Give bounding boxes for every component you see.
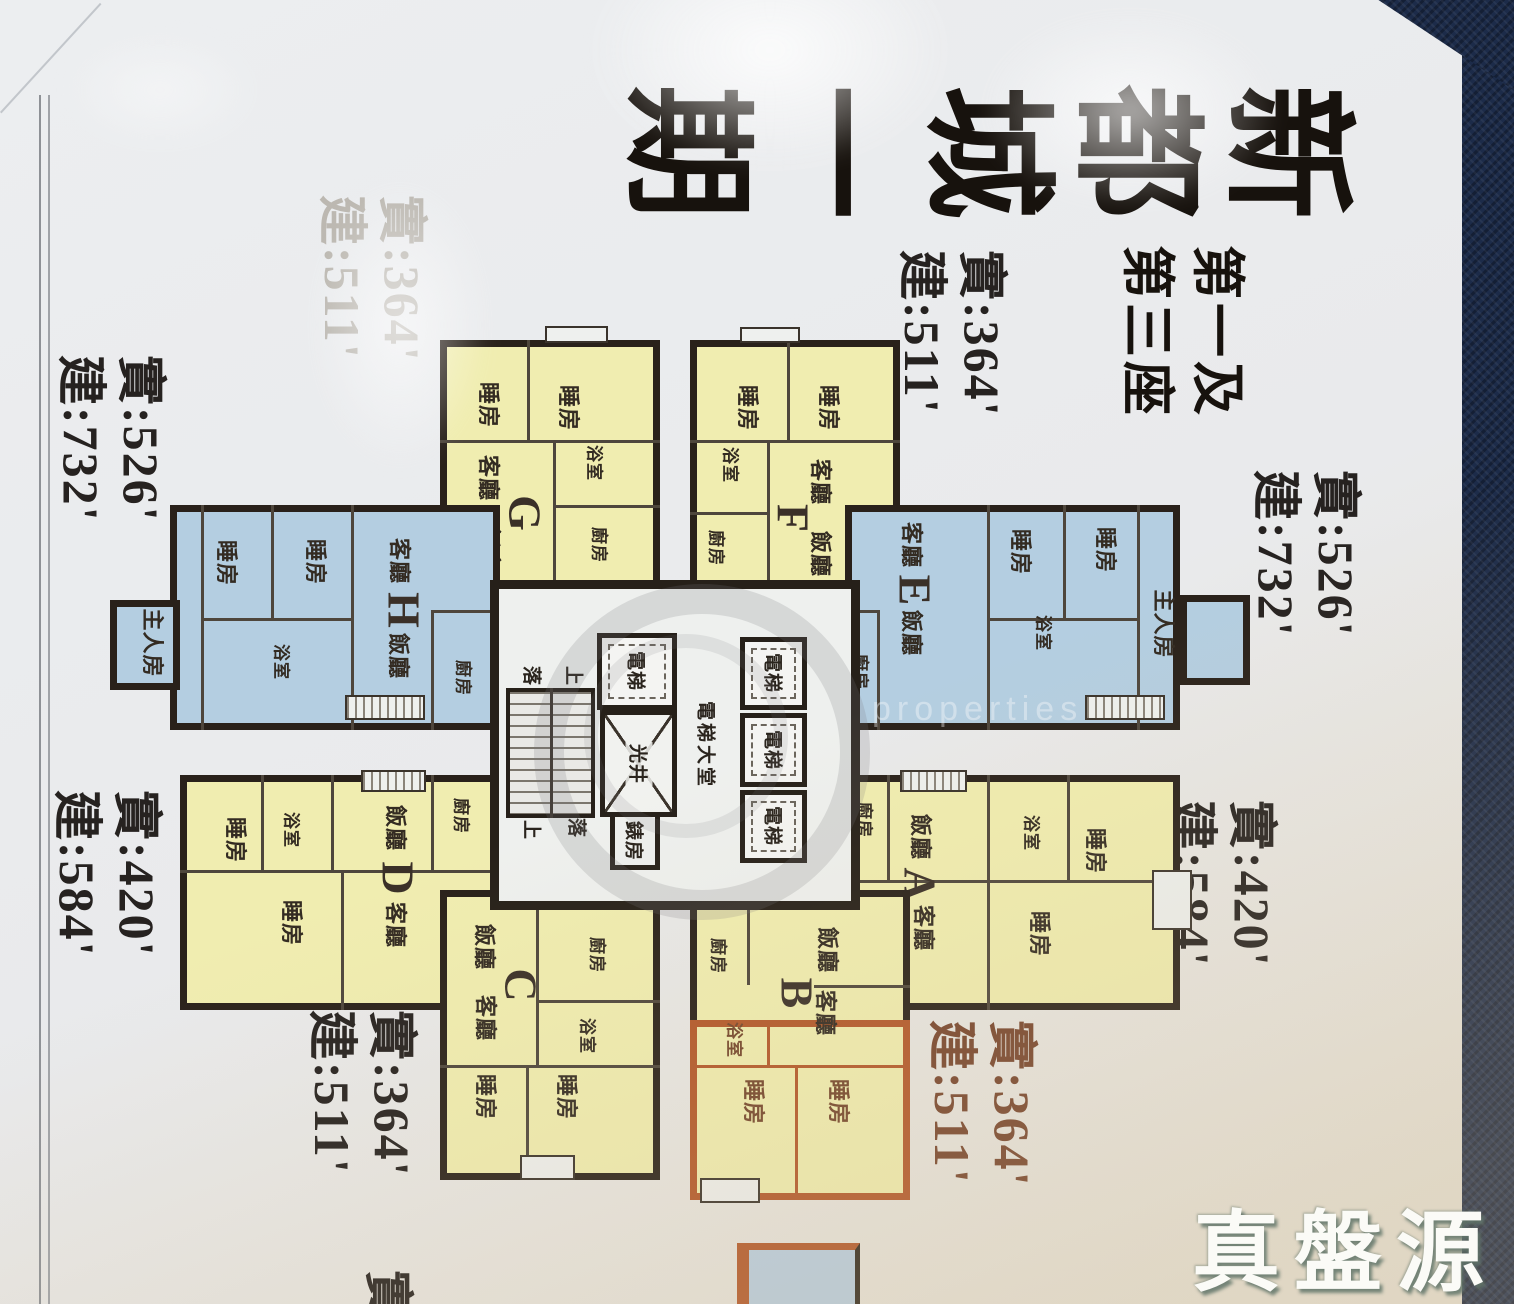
wall-segment: [440, 1065, 660, 1068]
room-label-bath: 浴室: [281, 812, 306, 848]
window-stub: [545, 326, 608, 343]
glare-highlight: [310, 180, 490, 470]
area-net: 實:364': [362, 1010, 422, 1178]
area-label-unit-f: 實:364' 建:511': [892, 250, 1012, 418]
room-label-bedroom: 睡房: [739, 1079, 771, 1125]
room-label-living: 客廳: [474, 455, 506, 501]
area-net: 實:526': [1306, 470, 1366, 638]
wall-segment: [767, 1020, 770, 1065]
room-label-dining: 飯廳: [470, 924, 502, 970]
area-gross: 建:584': [47, 790, 107, 958]
room-label-bedroom: 睡房: [552, 1074, 584, 1120]
wall-segment: [987, 775, 990, 1010]
room-label-bedroom: 睡房: [221, 817, 253, 863]
page-edge-line: [39, 95, 41, 1304]
area-net: 實:364': [952, 250, 1012, 418]
unit-letter-g: G: [499, 495, 552, 531]
room-label-bedroom: 睡房: [1091, 527, 1123, 573]
unit-letter-f: F: [767, 504, 820, 532]
room-label-bedroom: 睡房: [1025, 911, 1057, 957]
wall-segment: [690, 1065, 910, 1068]
stair-down-label: 落: [520, 666, 547, 686]
wall-segment: [431, 775, 434, 870]
room-label-bath: 浴室: [1033, 615, 1058, 651]
room-label-dining: 飯廳: [897, 610, 929, 656]
room-label-bath: 浴室: [584, 445, 609, 481]
wall-segment: [331, 775, 334, 870]
room-label-dining: 飯廳: [813, 927, 845, 973]
area-gross: 建:511': [922, 1020, 982, 1188]
window-stub: [700, 1178, 760, 1203]
area-label-unit-d: 實:420' 建:584': [47, 790, 167, 958]
room-label-bedroom: 睡房: [824, 1079, 856, 1125]
area-label-unit-h: 實:526' 建:732': [51, 355, 171, 523]
unit-letter-e: E: [889, 575, 942, 606]
area-gross: 建:511': [302, 1010, 362, 1178]
room-label-bedroom: 睡房: [212, 540, 244, 586]
room-label-dining: 飯廳: [384, 633, 416, 679]
room-label-bedroom: 睡房: [1006, 529, 1038, 575]
room-label-master-bedroom: 主人房: [1149, 589, 1181, 658]
room-label-living: 客廳: [897, 522, 929, 568]
room-label-bath: 浴室: [577, 1018, 602, 1054]
area-net: 實:364': [982, 1020, 1042, 1188]
window-stub: [740, 327, 800, 343]
unit-letter-h: H: [378, 592, 431, 628]
unit-e-master-wing: [1180, 595, 1250, 685]
room-label-dining: 飯廳: [806, 531, 838, 577]
wall-segment: [204, 618, 354, 621]
wall-segment: [887, 775, 890, 880]
listing-brand-watermark: 真盤源: [1192, 1182, 1498, 1304]
area-gross: 建:511': [892, 250, 952, 418]
area-net: 實:420': [1222, 800, 1282, 968]
balcony-hatched: [361, 770, 426, 792]
wall-segment: [814, 985, 910, 988]
subtitle-blocks-line2: 第三座: [1113, 245, 1192, 419]
room-label-kitchen: 廚房: [708, 938, 733, 974]
unit-letter-c: C: [495, 968, 548, 1001]
room-label-living: 客廳: [385, 538, 417, 584]
room-label-living: 客廳: [471, 995, 503, 1041]
wall-segment: [341, 870, 344, 1010]
wall-segment: [990, 618, 1140, 621]
agency-watermark-text: properties: [872, 690, 1083, 729]
area-label-unit-c: 實:364' 建:511': [302, 1010, 422, 1178]
room-label-bath: 浴室: [1021, 815, 1046, 851]
stair-up-label: 上: [520, 820, 547, 840]
wall-segment: [431, 610, 434, 730]
room-label-kitchen: 廚房: [451, 798, 476, 834]
room-label-bedroom: 睡房: [471, 1074, 503, 1120]
room-label-bedroom: 睡房: [554, 385, 586, 431]
unit-letter-d: D: [372, 861, 425, 894]
unit-letter-b: B: [771, 978, 824, 1009]
area-gross: 建:732': [51, 355, 111, 523]
wall-segment: [201, 505, 204, 730]
wall-segment: [539, 1000, 660, 1003]
wall-segment: [527, 340, 530, 440]
wall-segment: [261, 775, 264, 870]
wall-segment: [787, 340, 790, 440]
room-label-kitchen: 廚房: [587, 937, 612, 973]
window-stub: [520, 1155, 575, 1180]
area-net: 實:526': [111, 355, 171, 523]
room-label-bath: 浴室: [724, 1022, 749, 1058]
wall-segment: [690, 440, 900, 443]
wall-segment: [271, 505, 274, 618]
photo-of-floorplan-flyer: 新都城一期 第一及 第三座 實:526' 建:732' 實:420' 建:584…: [0, 0, 1514, 1304]
balcony-hatched: [345, 695, 425, 720]
glare-highlight: [60, 30, 260, 150]
wall-segment: [180, 870, 510, 873]
glare-highlight: [980, 10, 1280, 210]
room-label-bath: 浴室: [720, 447, 745, 483]
room-label-bath: 浴室: [271, 644, 296, 680]
room-label-bedroom: 睡房: [814, 385, 846, 431]
room-label-kitchen: 廚房: [453, 660, 478, 696]
wall-segment: [690, 512, 770, 515]
area-gross: 建:732': [1246, 470, 1306, 638]
wall-segment: [1067, 775, 1070, 880]
room-label-bedroom: 睡房: [733, 385, 765, 431]
next-floorplan-partial: [737, 1243, 860, 1304]
room-label-kitchen: 廚房: [589, 527, 614, 563]
subtitle-blocks-line1: 第一及: [1183, 245, 1262, 419]
wall-segment: [1063, 505, 1066, 618]
area-label-partial: 實: [358, 1270, 418, 1304]
room-label-living: 客廳: [381, 902, 413, 948]
area-net: 實:420': [107, 790, 167, 958]
wall-segment: [556, 505, 660, 508]
room-label-bedroom: 睡房: [301, 539, 333, 585]
window-stub: [1152, 870, 1192, 930]
room-label-bedroom: 睡房: [277, 900, 309, 946]
room-label-dining: 飯廳: [381, 805, 413, 851]
room-label-living: 客廳: [806, 459, 838, 505]
page-edge-line: [48, 95, 50, 1304]
room-label-dining: 飯廳: [906, 814, 938, 860]
area-label-unit-e: 實:526' 建:732': [1246, 470, 1366, 638]
balcony-hatched: [1085, 695, 1165, 720]
balcony-hatched: [900, 770, 967, 792]
wall-segment: [440, 440, 660, 443]
room-label-bedroom: 睡房: [1081, 828, 1113, 874]
room-label-master-bedroom: 主人房: [138, 608, 170, 677]
room-label-living: 客廳: [909, 905, 941, 951]
wall-segment: [795, 1065, 798, 1200]
room-label-kitchen: 廚房: [706, 530, 731, 566]
agency-logo-watermark-inner: [584, 634, 788, 838]
area-label-unit-b: 實:364' 建:511': [922, 1020, 1042, 1188]
